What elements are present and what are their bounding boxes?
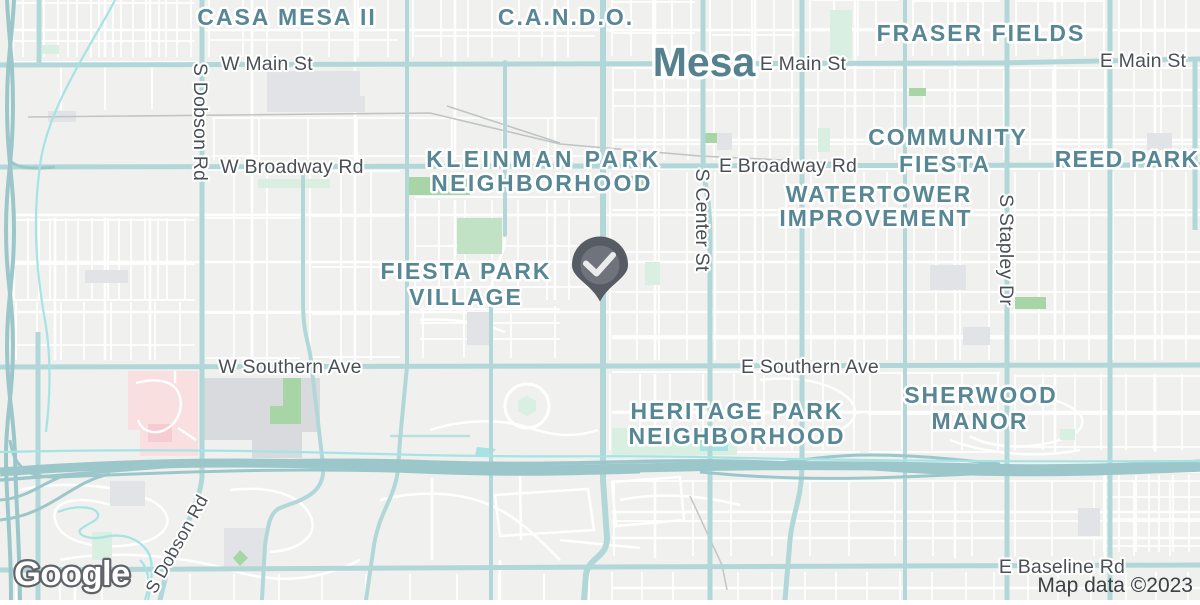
svg-text:MANOR: MANOR: [932, 408, 1029, 434]
svg-text:Mesa: Mesa: [653, 39, 757, 85]
svg-text:E Main St: E Main St: [760, 53, 847, 75]
svg-text:FIESTA PARK: FIESTA PARK: [380, 258, 551, 284]
svg-text:E Broadway Rd: E Broadway Rd: [719, 155, 857, 177]
svg-text:SHERWOOD: SHERWOOD: [904, 382, 1058, 408]
svg-text:KLEINMAN PARK: KLEINMAN PARK: [426, 146, 661, 172]
svg-text:IMPROVEMENT: IMPROVEMENT: [779, 205, 972, 231]
svg-text:S Center St: S Center St: [691, 169, 713, 272]
svg-text:CASA MESA II: CASA MESA II: [197, 4, 376, 30]
svg-text:S Dobson Rd: S Dobson Rd: [189, 63, 211, 181]
svg-text:COMMUNITY: COMMUNITY: [868, 124, 1028, 150]
svg-text:C.A.N.D.O.: C.A.N.D.O.: [498, 4, 634, 30]
svg-text:NEIGHBORHOOD: NEIGHBORHOOD: [629, 423, 846, 449]
svg-text:Google: Google: [14, 555, 130, 593]
svg-text:W Main St: W Main St: [221, 53, 313, 75]
svg-text:E Main St: E Main St: [1100, 50, 1187, 72]
svg-text:FRASER FIELDS: FRASER FIELDS: [877, 20, 1086, 46]
svg-text:HERITAGE PARK: HERITAGE PARK: [631, 398, 844, 424]
svg-text:REED PARK: REED PARK: [1055, 146, 1200, 172]
svg-text:W Broadway Rd: W Broadway Rd: [220, 156, 363, 178]
svg-text:WATERTOWER: WATERTOWER: [786, 181, 973, 207]
svg-text:W Southern Ave: W Southern Ave: [218, 356, 361, 378]
svg-text:NEIGHBORHOOD: NEIGHBORHOOD: [431, 170, 653, 196]
svg-text:Map data ©2023: Map data ©2023: [1037, 574, 1193, 597]
svg-text:VILLAGE: VILLAGE: [409, 284, 523, 310]
svg-text:E Southern Ave: E Southern Ave: [741, 356, 879, 378]
svg-text:FIESTA: FIESTA: [899, 151, 991, 177]
svg-text:S Stapley Dr: S Stapley Dr: [995, 194, 1017, 306]
